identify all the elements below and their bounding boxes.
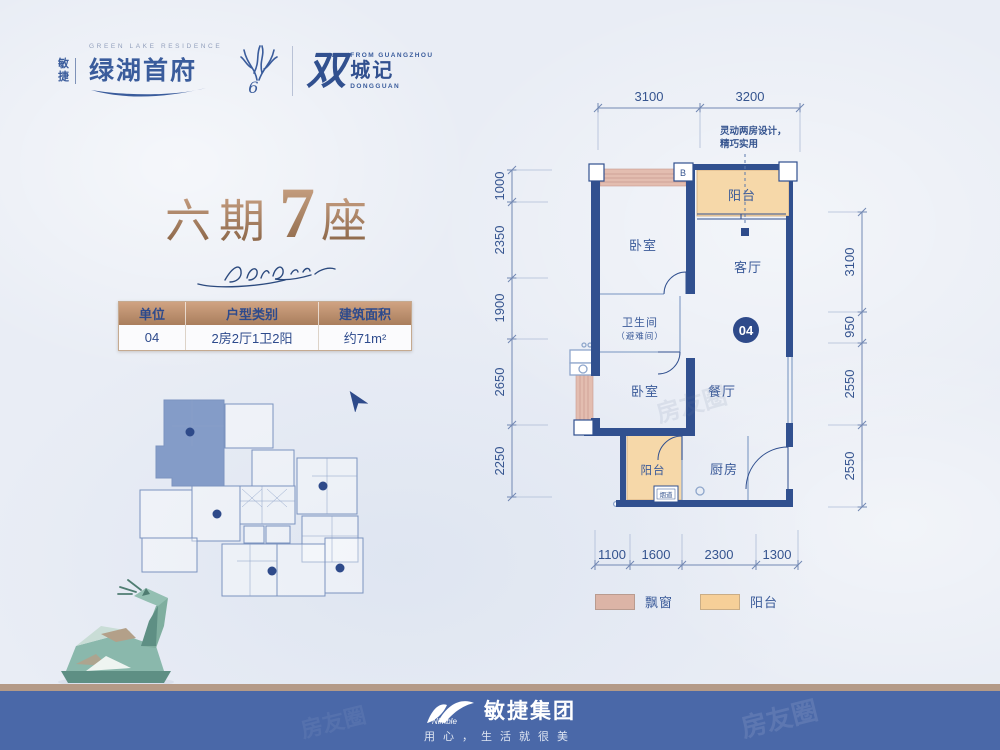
title-building: 座: [321, 185, 375, 251]
twin-cities-en-top: FROM GUANGZHOU: [350, 52, 433, 59]
spec-header-unit: 单位: [119, 302, 186, 325]
bath-label: 卫生间: [622, 315, 658, 329]
brand-main: GREEN LAKE RESIDENCE 绿湖首府: [89, 43, 222, 99]
bedroom1-label: 卧室: [629, 238, 657, 253]
flue-box: 烟道: [654, 486, 678, 502]
legend-bay-window: 飘窗: [595, 592, 673, 611]
spec-data-row: 04 2房2厅1卫2阳 约71m²: [119, 325, 411, 350]
living-label: 客厅: [734, 260, 762, 275]
dim-bottom-4: 1300: [763, 547, 792, 562]
floor-plate-keyplan: [112, 386, 368, 604]
brand-name: 绿湖首府: [89, 51, 197, 87]
unit-badge: 04: [733, 317, 759, 343]
brand-prefix-text: 敏捷: [58, 58, 71, 83]
logo-divider: [292, 46, 293, 96]
dim-bottom-1: 1100: [598, 547, 626, 562]
brand-lockup: 敏捷 GREEN LAKE RESIDENCE 绿湖首府 6: [58, 42, 433, 100]
spec-type-value: 2房2厅1卫2阳: [186, 325, 319, 350]
dim-left-5: 2250: [492, 447, 507, 476]
spec-unit-value: 04: [119, 325, 186, 350]
footer-logo-en: Nimble: [432, 717, 457, 725]
brand-prefix: 敏捷: [58, 58, 76, 84]
dim-right-3: 2550: [842, 370, 857, 399]
dim-left-3: 1900: [492, 294, 507, 323]
deer-artwork: [46, 576, 194, 688]
note-line2: 精巧实用: [720, 138, 758, 150]
legend-balcony-label: 阳台: [750, 592, 778, 611]
footer-bar: Nimble 敏捷集团 用心，生活就很美 房友圈 房友圈: [0, 691, 1000, 750]
balcony-bottom-label: 阳台: [641, 463, 666, 477]
spec-header-row: 单位 户型类别 建筑面积: [119, 302, 411, 325]
spec-header-type: 户型类别: [186, 302, 319, 325]
title-number: 7: [279, 172, 315, 255]
balcony-top-label: 阳台: [728, 188, 756, 203]
spec-header-area: 建筑面积: [319, 302, 411, 325]
dim-right-1: 3100: [842, 248, 857, 277]
north-arrow-icon: [344, 388, 368, 412]
bay-window-left: [576, 374, 593, 421]
footer-logo-cn: 敏捷集团: [484, 695, 576, 725]
marker-b-label: B: [680, 168, 686, 178]
dining-label: 餐厅: [708, 384, 736, 399]
twin-cities-script: 双: [306, 51, 346, 91]
footer-logo: Nimble 敏捷集团: [424, 695, 576, 725]
bath-sub-label: （避难间）: [616, 331, 664, 341]
dim-bottom-3: 2300: [705, 547, 734, 562]
nimble-swoosh-icon: Nimble: [424, 699, 478, 725]
bay-window-top: [600, 169, 686, 186]
signature-script: [195, 250, 345, 292]
page: 敏捷 GREEN LAKE RESIDENCE 绿湖首府 6: [0, 0, 1000, 750]
dim-left-1: 1000: [492, 172, 507, 201]
dim-right-4: 2550: [842, 452, 857, 481]
brand-prefix-divider: [75, 58, 76, 84]
twin-cities-en-bottom: DONGGUAN: [350, 83, 433, 90]
dim-left-2: 2350: [492, 226, 507, 255]
note-line1: 灵动两房设计，: [719, 125, 787, 137]
spec-area-value: 约71m²: [319, 325, 411, 350]
unit-badge-number: 04: [739, 323, 754, 338]
antler-logo-icon: 6: [237, 42, 279, 100]
title-phase: 六期: [165, 185, 273, 251]
legend-bay-label: 飘窗: [645, 592, 673, 611]
kitchen-label: 厨房: [710, 462, 738, 477]
bedroom2-label: 卧室: [631, 384, 659, 399]
twin-cities-logo: 双 FROM GUANGZHOU 城记 DONGGUAN: [306, 51, 433, 91]
legend-bay-swatch: [595, 594, 635, 610]
legend-balcony: 阳台: [700, 592, 778, 611]
brand-mark-number: 6: [248, 78, 258, 97]
dim-top-1: 3100: [635, 89, 664, 104]
unit-spec-table: 单位 户型类别 建筑面积 04 2房2厅1卫2阳 约71m²: [118, 301, 412, 351]
footer-tagline: 用心，生活就很美: [424, 728, 576, 744]
flue-label: 烟道: [660, 490, 674, 499]
dim-bottom-2: 1600: [642, 547, 671, 562]
dim-top-2: 3200: [736, 89, 765, 104]
dim-left-4: 2650: [492, 368, 507, 397]
brand-swoosh: [89, 87, 209, 99]
dim-right-2: 950: [842, 316, 857, 338]
legend-balcony-swatch: [700, 594, 740, 610]
page-title: 六期 7 座: [120, 172, 420, 255]
brand-english: GREEN LAKE RESIDENCE: [89, 43, 222, 50]
twin-cities-name: 城记: [350, 60, 433, 83]
floor-plan: B 烟道 卧室 阳台 客厅 卫生间 （避难间） 卧室 餐厅 阳台 厨房 04 灵…: [488, 85, 886, 585]
footer-accent-strip: [0, 684, 1000, 691]
